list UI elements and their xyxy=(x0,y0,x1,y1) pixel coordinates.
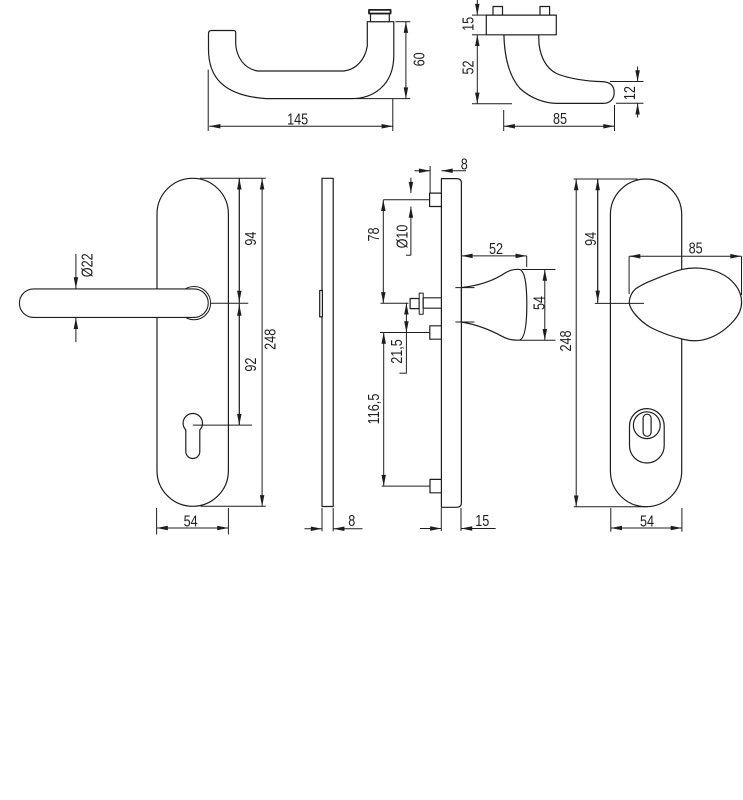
svg-text:85: 85 xyxy=(689,240,703,258)
svg-text:92: 92 xyxy=(243,358,261,372)
svg-text:85: 85 xyxy=(553,111,567,129)
svg-text:94: 94 xyxy=(583,232,601,246)
svg-text:145: 145 xyxy=(287,111,308,129)
svg-text:248: 248 xyxy=(558,330,576,351)
svg-text:52: 52 xyxy=(489,241,503,259)
svg-text:94: 94 xyxy=(243,232,261,246)
svg-text:248: 248 xyxy=(262,329,280,350)
svg-text:21,5: 21,5 xyxy=(389,339,407,364)
svg-text:60: 60 xyxy=(411,52,429,66)
svg-text:54: 54 xyxy=(184,513,198,531)
svg-text:54: 54 xyxy=(531,296,549,310)
svg-text:15: 15 xyxy=(460,17,478,31)
svg-text:8: 8 xyxy=(461,156,468,174)
svg-text:Ø10: Ø10 xyxy=(394,225,412,249)
svg-text:54: 54 xyxy=(640,513,654,531)
svg-text:15: 15 xyxy=(475,513,489,531)
svg-text:116,5: 116,5 xyxy=(366,394,384,425)
svg-text:8: 8 xyxy=(348,513,355,531)
svg-text:78: 78 xyxy=(366,227,384,241)
svg-text:12: 12 xyxy=(622,86,640,100)
svg-text:Ø22: Ø22 xyxy=(79,253,97,277)
svg-text:52: 52 xyxy=(460,60,478,74)
